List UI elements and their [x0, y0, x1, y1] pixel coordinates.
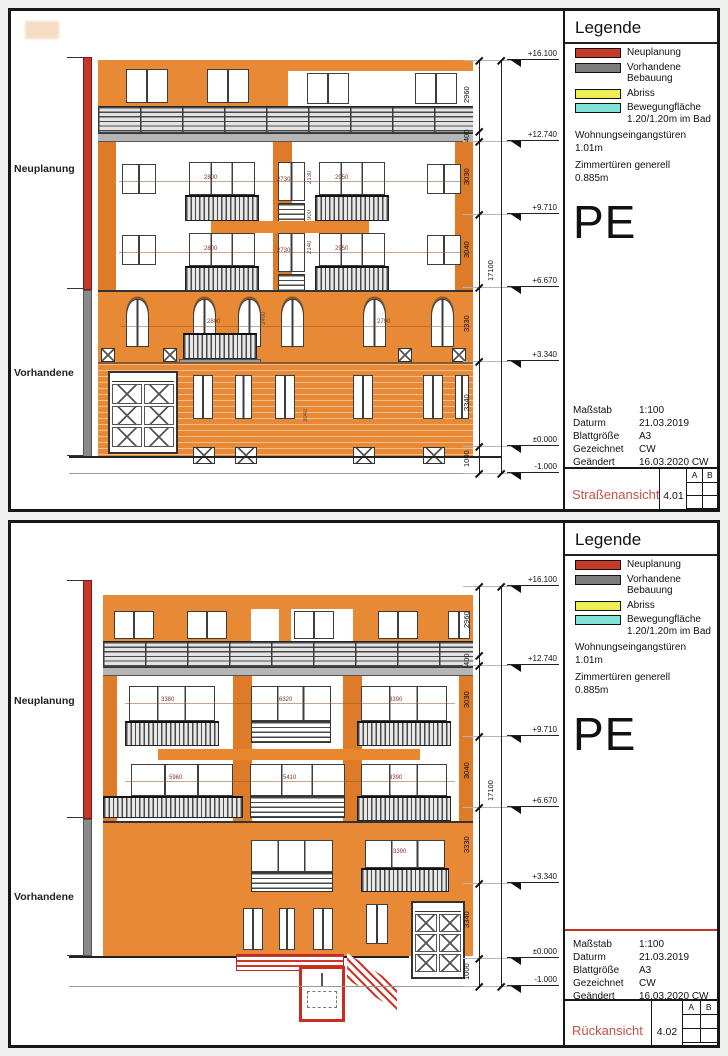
- segment-dim: 3340: [462, 904, 471, 936]
- dim-label: 2800: [207, 319, 220, 325]
- dim-label: 3040: [303, 395, 309, 435]
- dim-label: 5960: [169, 775, 182, 781]
- revision-line: [565, 929, 717, 931]
- stair-ramp: [347, 953, 397, 1011]
- elevation-marker: +9.710: [507, 201, 565, 214]
- window: [319, 233, 385, 266]
- elevation-marker: +12.740: [507, 128, 565, 141]
- neuplanung-chip: [575, 560, 621, 570]
- segment-dim: 1000: [462, 443, 471, 475]
- plan-mark: PE: [565, 185, 717, 249]
- vorhandene-bar: [83, 290, 92, 457]
- window: [415, 73, 457, 104]
- elevation-marker: +16.100: [507, 573, 565, 586]
- legend-label: Neuplanung: [627, 47, 681, 59]
- window: [427, 164, 461, 194]
- window: [122, 164, 156, 194]
- entrance-door: [108, 371, 178, 454]
- legend-item: Bewegungfläche 1.20/1.20m im Bad: [565, 611, 717, 637]
- basement-line: [69, 986, 489, 987]
- legend-item: Bewegungfläche 1.20/1.20m im Bad: [565, 99, 717, 125]
- arched-window: [431, 299, 454, 347]
- legend-label: Bewegungfläche 1.20/1.20m im Bad: [627, 614, 713, 637]
- segment-dim: 3040: [462, 755, 471, 787]
- level-line: [463, 736, 511, 737]
- level-line: [463, 883, 511, 884]
- sheet-title: Rückansicht: [565, 1001, 651, 1045]
- legend-item: Abriss: [565, 85, 717, 100]
- facade-ornament: [101, 348, 115, 362]
- window: [378, 611, 418, 639]
- window: [307, 73, 349, 104]
- dim-label: 2730: [277, 248, 290, 254]
- window: [313, 908, 333, 950]
- titleblock-bottom: Rückansicht 4.02 AB: [565, 999, 717, 1045]
- balcony-slab: [98, 133, 473, 142]
- stair-louver: [278, 203, 305, 223]
- sheet-number: 4.02: [651, 1001, 682, 1045]
- revision-grid: AB: [686, 469, 717, 509]
- balcony-railing: [185, 266, 259, 292]
- ground-line: [69, 456, 501, 458]
- total-dim: 17100: [486, 251, 495, 291]
- dimension-line: [119, 181, 471, 182]
- label-vorhandene: Vorhandene: [14, 367, 74, 379]
- level-tick: [67, 817, 83, 818]
- window: [189, 162, 255, 195]
- bewegungflaeche-chip: [575, 103, 621, 113]
- roof-terrace-railing: [103, 641, 473, 667]
- dimension-line: [125, 781, 455, 782]
- window: [122, 235, 156, 265]
- dim-label: 2800: [204, 246, 217, 252]
- balcony-slab: [211, 221, 369, 233]
- level-tick: [67, 57, 83, 58]
- level-line: [463, 60, 511, 61]
- window: [193, 375, 213, 419]
- pit-post: [321, 973, 323, 986]
- elevation-marker: +9.710: [507, 723, 565, 736]
- elevation-marker: +16.100: [507, 47, 565, 60]
- balcony-railing: [103, 796, 243, 818]
- dim-label: 5410: [283, 775, 296, 781]
- elevation-marker: +3.340: [507, 870, 565, 883]
- legend-title: Legende: [565, 523, 717, 556]
- segment-dim: 3030: [462, 161, 471, 193]
- lightwell-pit: [299, 966, 345, 1022]
- door-transom: [112, 373, 174, 382]
- bewegungflaeche-chip: [575, 615, 621, 625]
- dim-label: 2790: [377, 319, 390, 325]
- stair-louver: [250, 796, 345, 818]
- sheet-title: Straßenansicht: [565, 469, 659, 509]
- facade-ornament: [163, 348, 177, 362]
- window: [319, 162, 385, 195]
- elevation-marker: +3.340: [507, 348, 565, 361]
- titleblock: Maßstab1:100 Daturm21.03.2019 Blattgröße…: [565, 403, 717, 468]
- legend-label: Vorhandene Bebauung: [627, 574, 713, 597]
- segment-dim: 2960: [462, 79, 471, 111]
- legend-panel: Legende Neuplanung Vorhandene Bebauung A…: [563, 523, 717, 1045]
- segment-dim: 3030: [462, 684, 471, 716]
- dimension-line: [119, 252, 471, 253]
- level-tick: [67, 580, 83, 581]
- sheet-number: 4.01: [659, 469, 686, 509]
- window: [423, 375, 443, 419]
- legend-item: Neuplanung: [565, 44, 717, 59]
- balcony-railing: [315, 195, 389, 221]
- legend-note: Wohnungseingangstüren 1.01m: [565, 637, 713, 667]
- window: [187, 611, 227, 639]
- dimension-chain-line: [479, 60, 480, 473]
- segment-dim: 3330: [462, 308, 471, 340]
- dim-label: 2130: [307, 163, 313, 191]
- window: [361, 764, 447, 796]
- balcony-railing: [125, 721, 219, 746]
- dimension-chain-line: [501, 60, 502, 473]
- door-panels: [112, 384, 174, 447]
- dim-label: 2950: [335, 175, 348, 181]
- attic-recess: [251, 609, 279, 641]
- vorhandene-bar: [83, 819, 92, 956]
- label-neuplanung: Neuplanung: [14, 163, 75, 175]
- dim-label: 2140: [307, 234, 313, 260]
- window-louver: [251, 872, 333, 892]
- balcony-slab: [158, 749, 420, 760]
- balcony-railing: [361, 868, 449, 892]
- sheet-rueckansicht: Neuplanung Vorhandene 3380 6320 3390 596…: [8, 520, 720, 1048]
- dim-label: 2800: [204, 175, 217, 181]
- window: [235, 375, 252, 419]
- segment-dim: 400: [462, 120, 471, 152]
- legend-note: Zimmertüren generell 0.885m: [565, 155, 713, 185]
- elevation-marker: ±0.000: [507, 433, 565, 446]
- dim-label: 3390: [389, 775, 402, 781]
- door-transom: [415, 903, 461, 912]
- window: [279, 908, 295, 950]
- vorhandene-chip: [575, 575, 621, 585]
- window: [189, 233, 255, 266]
- segment-dim: 2960: [462, 604, 471, 636]
- legend-item: Neuplanung: [565, 556, 717, 571]
- window: [126, 69, 168, 103]
- window: [294, 611, 334, 639]
- balcony-railing: [183, 333, 257, 359]
- dim-label: 3390: [389, 697, 402, 703]
- legend-label: Abriss: [627, 600, 655, 612]
- elevation-marker: +12.740: [507, 652, 565, 665]
- titleblock-bottom: Straßenansicht 4.01 AB: [565, 467, 717, 509]
- dim-label: 2400: [261, 304, 267, 332]
- level-line: [463, 586, 511, 587]
- label-vorhandene: Vorhandene: [14, 891, 74, 903]
- window: [427, 235, 461, 265]
- elevation-marker: -1.000: [507, 973, 565, 986]
- window: [251, 840, 333, 872]
- level-tick: [67, 288, 83, 289]
- legend-note: Zimmertüren generell 0.885m: [565, 667, 713, 697]
- balcony-railing: [357, 721, 451, 746]
- dim-label: 3380: [161, 697, 174, 703]
- balcony-railing: [185, 195, 259, 221]
- arched-window: [281, 299, 304, 347]
- window: [250, 764, 345, 796]
- basement-line: [69, 473, 501, 474]
- dim-label: 2950: [335, 246, 348, 252]
- door-panels: [415, 914, 461, 972]
- balcony-railing: [315, 266, 389, 292]
- window: [366, 904, 388, 944]
- legend-label: Vorhandene Bebauung: [627, 62, 713, 85]
- watermark: [25, 21, 59, 39]
- dimension-chain-line: [501, 586, 502, 986]
- plan-mark: PE: [565, 697, 717, 761]
- legend-item: Vorhandene Bebauung: [565, 571, 717, 597]
- facade-ornament: [398, 348, 412, 362]
- balcony-slab: [103, 667, 473, 676]
- window: [275, 375, 295, 419]
- legend-title: Legende: [565, 11, 717, 44]
- roof-terrace-railing: [98, 106, 473, 133]
- dimension-chain-line: [479, 586, 480, 986]
- window: [353, 375, 373, 419]
- elevation-marker: +6.670: [507, 274, 565, 287]
- vorhandene-chip: [575, 63, 621, 73]
- segment-dim: 3330: [462, 829, 471, 861]
- elevation-marker: -1.000: [507, 460, 565, 473]
- dim-label: 2730: [277, 177, 290, 183]
- elevation-marker: +6.670: [507, 794, 565, 807]
- label-neuplanung: Neuplanung: [14, 695, 75, 707]
- dim-label: 6320: [279, 697, 292, 703]
- titleblock: Maßstab1:100 Daturm21.03.2019 Blattgröße…: [565, 937, 717, 1002]
- arched-window: [126, 299, 149, 347]
- total-dim: 17100: [486, 771, 495, 811]
- abriss-chip: [575, 601, 621, 611]
- segment-dim: 3340: [462, 387, 471, 419]
- neuplanung-bar: [83, 57, 92, 290]
- legend-label: Bewegungfläche 1.20/1.20m im Bad: [627, 102, 713, 125]
- balcony-railing: [357, 796, 451, 821]
- legend-label: Abriss: [627, 88, 655, 100]
- segment-dim: 1000: [462, 956, 471, 988]
- stair-louver: [251, 721, 331, 743]
- pilaster: [98, 142, 116, 290]
- level-line: [463, 361, 511, 362]
- legend-panel: Legende Neuplanung Vorhandene Bebauung A…: [563, 11, 717, 509]
- abriss-chip: [575, 89, 621, 99]
- neuplanung-chip: [575, 48, 621, 58]
- revision-grid: AB: [682, 1001, 717, 1045]
- rear-door: [411, 901, 465, 979]
- window: [207, 69, 249, 103]
- neuplanung-bar: [83, 580, 92, 819]
- window: [114, 611, 154, 639]
- legend-note: Wohnungseingangstüren 1.01m: [565, 125, 713, 155]
- level-line: [463, 214, 511, 215]
- dimension-line: [125, 703, 455, 704]
- legend-item: Abriss: [565, 597, 717, 612]
- sheet-strassenansicht: Neuplanung Vorhandene 2800 2730 2950 213…: [8, 8, 720, 512]
- segment-dim: 3040: [462, 234, 471, 266]
- legend-label: Neuplanung: [627, 559, 681, 571]
- facade-ornament: [452, 348, 466, 362]
- dimension-line: [121, 326, 471, 327]
- dim-label: 3390: [393, 849, 406, 855]
- elevation-marker: ±0.000: [507, 945, 565, 958]
- pit-hidden-edge: [307, 991, 337, 1008]
- legend-item: Vorhandene Bebauung: [565, 59, 717, 85]
- segment-dim: 400: [462, 644, 471, 676]
- window: [243, 908, 263, 950]
